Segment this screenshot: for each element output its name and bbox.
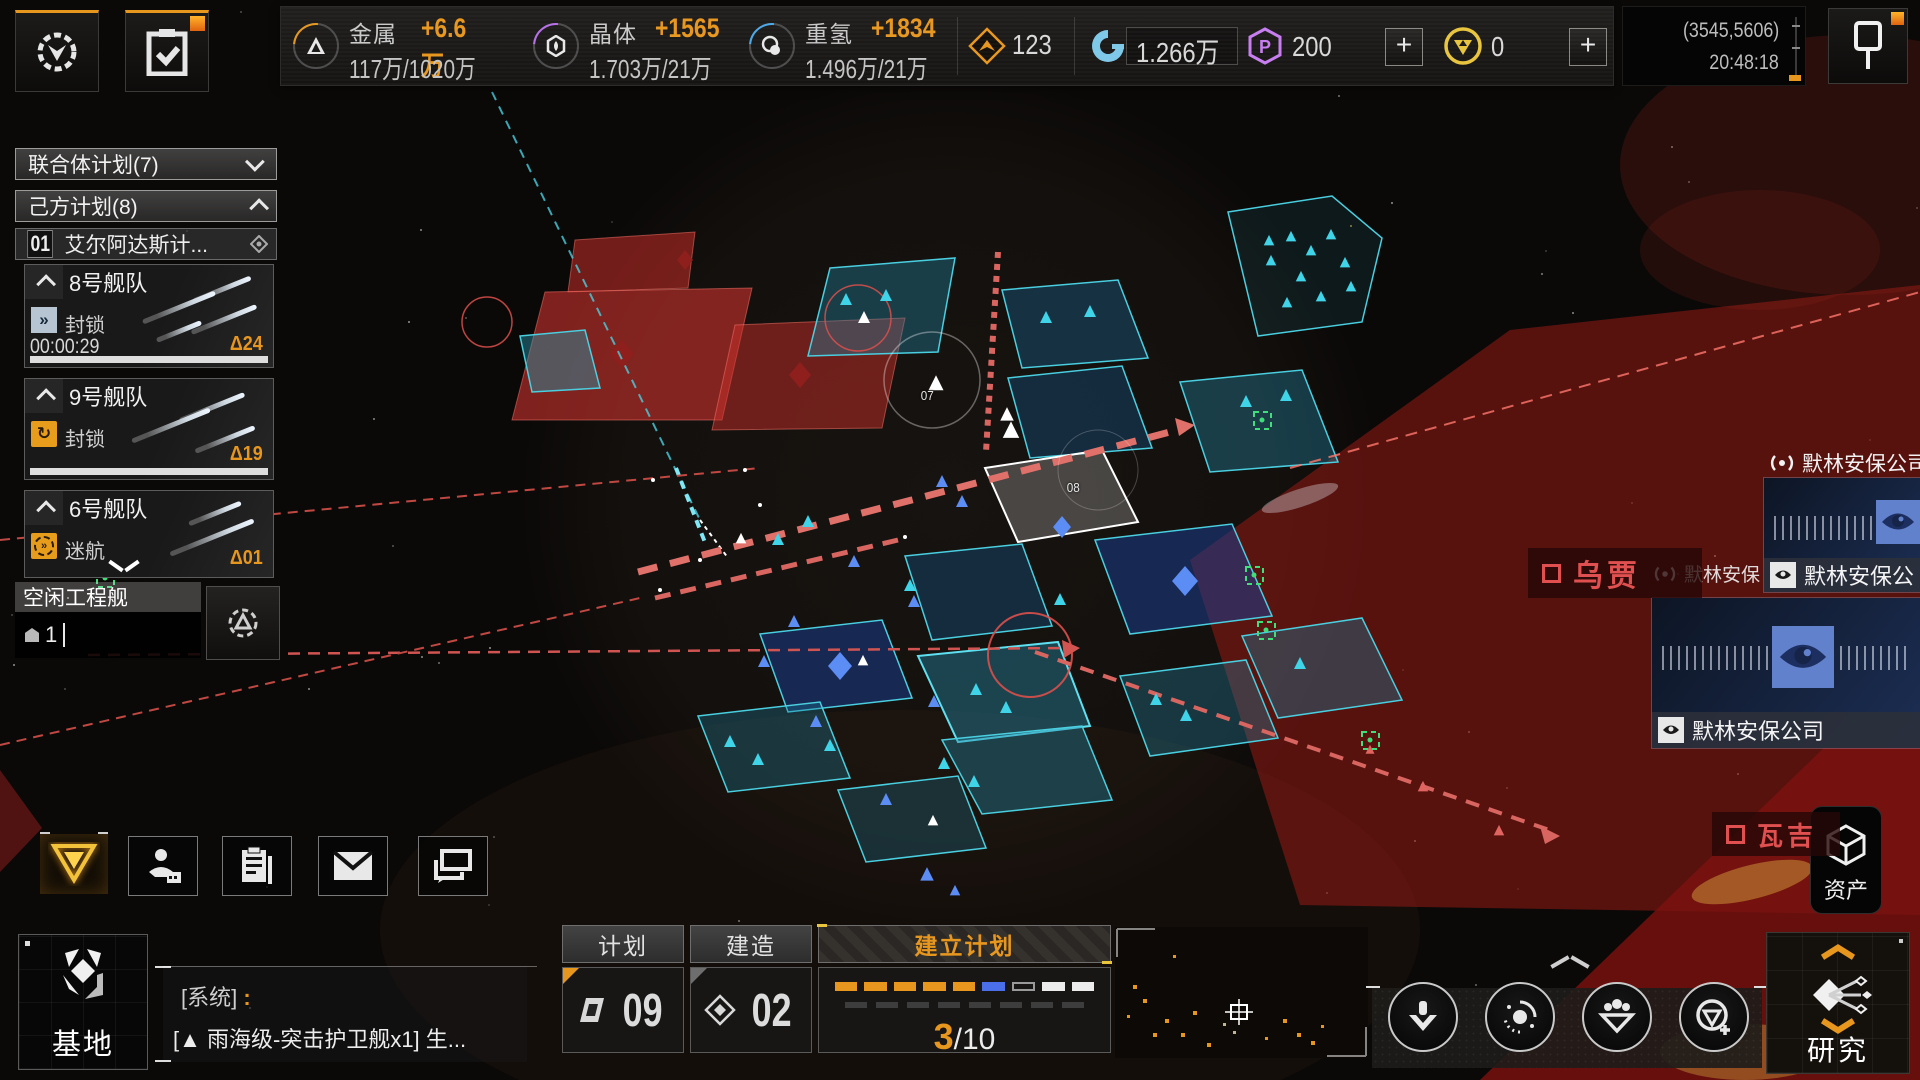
broadcast-icon — [1768, 451, 1796, 475]
plan-slot-empty — [1062, 1002, 1084, 1008]
proxima-coin-icon — [968, 27, 1006, 65]
plan-slot-empty — [907, 1002, 929, 1008]
enemy-label-wujia[interactable]: 乌贾 — [1528, 548, 1702, 598]
map-unit-tag: 08 — [1067, 480, 1080, 495]
base-button[interactable]: 基地 — [18, 934, 148, 1070]
plan-diamond-icon — [250, 235, 268, 253]
proxima-value: 123 — [1012, 29, 1052, 61]
game-screen: 07 08 金属 +6.6万 117万/1020万 — [0, 0, 1920, 1080]
build-count: 02 — [752, 983, 792, 1037]
buy-gold-plus-button[interactable]: + — [1569, 28, 1607, 66]
clipboard-check-icon — [145, 28, 189, 76]
tick — [1792, 47, 1800, 49]
establish-plan-cell[interactable]: 3/10 — [818, 967, 1111, 1053]
plan-slot-white — [1042, 982, 1064, 991]
plan-slot-orange — [864, 982, 886, 991]
gold-icon — [1443, 26, 1483, 66]
gear-emblem-icon — [32, 27, 82, 77]
plan-slot-white — [1072, 982, 1094, 991]
research-button[interactable]: 研究 — [1766, 932, 1910, 1074]
fleet-delta: Δ24 — [230, 333, 263, 356]
chat-button[interactable] — [418, 836, 488, 896]
eye-icon — [1772, 626, 1834, 688]
fleet-progress-bar — [30, 356, 268, 363]
own-plans-label: 己方计划(8) — [28, 191, 138, 221]
coordinates-clock: (3545,5606) 20:48:18 — [1622, 6, 1806, 86]
tactical-map[interactable]: 07 08 — [0, 0, 1920, 1080]
orange-tick — [1789, 75, 1801, 81]
cursor-caret — [63, 623, 65, 647]
fleet-status: 迷航 — [65, 535, 105, 564]
metal-amount: 117万/1020万 — [349, 49, 476, 86]
plan-slot-blue — [982, 982, 1004, 991]
fleet-status: 封锁 — [65, 423, 105, 452]
fleet-progress-bar — [30, 468, 268, 475]
fleet-name: 8号舰队 — [69, 266, 147, 298]
plan-slot-empty — [938, 1002, 960, 1008]
divider — [1074, 17, 1075, 75]
svg-text:P: P — [1259, 37, 1271, 57]
marker-flag-icon — [1853, 20, 1883, 72]
mail-icon — [332, 850, 374, 882]
deuterium-icon — [749, 23, 795, 69]
deuterium-label: 重氢 — [805, 15, 853, 49]
corner-dot — [25, 941, 30, 946]
plan-slots — [835, 982, 1094, 991]
deuterium-delta: +1834 — [871, 13, 935, 44]
buy-pass-plus-button[interactable]: + — [1385, 28, 1423, 66]
clipboard-doc-icon — [239, 846, 275, 886]
chevron-up-icon — [36, 388, 56, 408]
contacts-button[interactable] — [128, 836, 198, 896]
tab-plan[interactable]: 计划 — [562, 925, 684, 963]
plan-name: 艾尔阿达斯计... — [64, 229, 208, 259]
engineer-gear-icon — [222, 602, 264, 644]
dock-collapse-handle[interactable] — [1546, 952, 1594, 972]
base-diamond-icon — [45, 943, 121, 1015]
surveillance-1-caption: 默林安保公 — [1764, 558, 1920, 592]
minimap-canvas — [1115, 927, 1368, 1058]
commander-menu-button[interactable] — [15, 10, 99, 92]
engineer-ship-icon — [25, 628, 39, 642]
surveillance-panel-2[interactable]: 默林安保公司 — [1652, 598, 1920, 748]
map-canvas — [0, 0, 1920, 1080]
fleet-card-9[interactable]: 9号舰队 ↻ 封锁 Δ19 — [24, 378, 274, 480]
coordinates-value: (3545,5606) — [1683, 19, 1779, 43]
divider — [957, 17, 958, 75]
plan-slots-dim — [835, 1002, 1094, 1008]
resource-metal[interactable]: 金属 +6.6万 117万/1020万 — [293, 7, 493, 85]
gold-value: 0 — [1491, 31, 1504, 63]
plan-slot-empty — [845, 1002, 867, 1008]
metal-icon — [293, 23, 339, 69]
fleet-status: 封锁 — [65, 309, 105, 338]
fleet-name: 6号舰队 — [69, 492, 147, 524]
plan-slot-orange — [835, 982, 857, 991]
chat-bubbles-icon — [432, 848, 474, 884]
corner-dot — [1899, 939, 1903, 943]
tab-establish-plan-label: 建立计划 — [915, 927, 1015, 961]
fleet-list-expand-handle[interactable] — [104, 564, 144, 582]
system-chat-box[interactable]: [系统] : [▲ 雨海级-突击护卫舰x1] 生... — [163, 966, 527, 1062]
divider — [163, 966, 537, 967]
pass-point-icon: P — [1246, 27, 1284, 65]
tick — [1792, 25, 1800, 27]
people-funnel-icon — [1598, 999, 1636, 1035]
union-value: 1.266万 — [1136, 31, 1219, 71]
idle-engineer-count: 1 — [45, 622, 57, 648]
watcher-mini-icon — [1658, 717, 1684, 743]
enemy-name: 瓦吉 — [1757, 816, 1817, 853]
plan-count-cell[interactable]: 09 — [562, 967, 684, 1053]
plan-count: 09 — [623, 983, 663, 1037]
chevron-up-icon — [249, 198, 269, 218]
reports-button[interactable] — [222, 836, 292, 896]
system-message: [▲ 雨海级-突击护卫舰x1] 生... — [173, 1022, 466, 1054]
pass-value: 200 — [1292, 31, 1332, 63]
clock-value: 20:48:18 — [1710, 51, 1779, 75]
marker-badge — [1891, 12, 1904, 25]
tasks-button[interactable] — [125, 10, 209, 92]
recruit-button[interactable] — [1679, 982, 1749, 1052]
surveillance-panel-1[interactable]: 默林安保公 — [1764, 478, 1920, 592]
ship-sprite — [191, 304, 258, 335]
plan-slot-empty — [1031, 1002, 1053, 1008]
person-supply-icon — [143, 846, 183, 886]
union-plans-header[interactable]: 联合体计划(7) — [15, 148, 277, 180]
fleet-card-6[interactable]: 6号舰队 » 迷航 Δ01 — [24, 490, 274, 578]
members-button[interactable] — [1582, 982, 1652, 1052]
idle-engineer-slot[interactable]: 1 — [15, 612, 201, 658]
eye-icon — [1876, 500, 1920, 544]
deuterium-amount: 1.496万/21万 — [805, 49, 928, 86]
assets-label: 资产 — [1811, 873, 1881, 905]
watcher-mini-icon — [1770, 562, 1796, 588]
galaxy-view-button[interactable] — [1485, 982, 1555, 1052]
build-tabs-panel: 计划 建造 建立计划 09 02 — [560, 925, 1113, 1053]
warp-icon: » — [31, 533, 57, 559]
mail-button[interactable] — [318, 836, 388, 896]
collapse-chevron[interactable] — [25, 265, 63, 299]
audio-waveform — [1774, 516, 1874, 540]
active-plan-item[interactable]: 01 艾尔阿达斯计... — [15, 228, 277, 260]
fleet-card-8[interactable]: 8号舰队 » 封锁 00:00:29 Δ24 — [24, 264, 274, 368]
plan-slot-empty — [876, 1002, 898, 1008]
resource-deuterium[interactable]: 重氢 +1834 1.496万/21万 — [749, 7, 939, 85]
metal-label: 金属 — [349, 15, 397, 49]
map-unit-tag: 07 — [921, 388, 934, 403]
research-label: 研究 — [1767, 1029, 1909, 1069]
collapse-chevron[interactable] — [25, 379, 63, 413]
plan-index: 01 — [27, 230, 53, 258]
plan-slot-empty — [1000, 1002, 1022, 1008]
download-arrow-icon — [1406, 999, 1440, 1035]
system-prefix: [系统] : — [181, 980, 251, 1012]
currency-proxima[interactable]: 123 — [968, 7, 1068, 85]
resource-crystal[interactable]: 晶体 +1565 1.703万/21万 — [533, 7, 723, 85]
minimap[interactable] — [1115, 927, 1368, 1058]
diamond-build-icon — [704, 994, 736, 1026]
tab-build[interactable]: 建造 — [690, 925, 812, 963]
faction-button[interactable] — [40, 834, 108, 894]
crystal-icon — [533, 23, 579, 69]
union-coin-icon — [1088, 26, 1128, 66]
engage-icon: ↻ — [31, 421, 57, 447]
chevron-up-icon — [36, 274, 56, 294]
logo-plus-icon — [1694, 997, 1734, 1037]
faction-triangle-icon — [48, 842, 100, 886]
position-marker-button[interactable] — [1828, 8, 1908, 84]
build-count-cell[interactable]: 02 — [690, 967, 812, 1053]
union-plans-label: 联合体计划(7) — [28, 149, 159, 179]
crystal-delta: +1565 — [655, 13, 719, 44]
plan-slot-orange — [894, 982, 916, 991]
crystal-amount: 1.703万/21万 — [589, 49, 712, 86]
fleet-name: 9号舰队 — [69, 380, 147, 412]
base-label: 基地 — [19, 1021, 147, 1063]
deploy-button[interactable] — [1388, 982, 1458, 1052]
hollow-square-icon — [1726, 825, 1745, 844]
plan-slot-gray — [1012, 982, 1035, 991]
plan-slot-orange — [953, 982, 975, 991]
fast-forward-icon: » — [31, 307, 57, 333]
tab-plan-label: 计划 — [598, 927, 648, 961]
chevron-down-icon — [245, 152, 265, 172]
enemy-name: 乌贾 — [1573, 551, 1641, 595]
audio-waveform — [1840, 646, 1910, 670]
surveillance-top-label: 默林安保公司发 — [1768, 448, 1920, 478]
plan-progress: 3/10 — [819, 1016, 1110, 1058]
chevron-up-icon — [36, 500, 56, 520]
engineer-manage-button[interactable] — [206, 586, 280, 660]
hollow-square-icon — [1542, 564, 1561, 583]
own-plans-header[interactable]: 己方计划(8) — [15, 190, 277, 222]
spiral-galaxy-icon — [1501, 998, 1539, 1036]
tab-establish-plan[interactable]: 建立计划 — [818, 925, 1111, 963]
currency-pass[interactable]: P 200 — [1246, 7, 1396, 85]
bottom-right-dock — [1372, 988, 1762, 1068]
fleet-delta: Δ01 — [230, 547, 263, 570]
crystal-label: 晶体 — [589, 15, 637, 49]
chevron-up-icon — [1821, 945, 1855, 961]
hexagon-plan-icon — [577, 995, 607, 1025]
idle-engineer-label: 空闲工程舰 — [15, 582, 201, 612]
research-circuit-icon — [1795, 969, 1881, 1021]
surveillance-2-caption: 默林安保公司 — [1652, 712, 1920, 748]
fleet-delta: Δ19 — [230, 443, 263, 466]
enemy-label-waji[interactable]: 瓦吉 — [1712, 812, 1840, 856]
tab-build-label: 建造 — [726, 927, 776, 961]
tasks-notification-badge — [190, 16, 205, 31]
system-colon: : — [237, 985, 250, 1010]
collapse-chevron[interactable] — [25, 491, 63, 525]
plan-slot-empty — [969, 1002, 991, 1008]
audio-waveform — [1662, 646, 1772, 670]
plan-slot-orange — [923, 982, 945, 991]
top-resource-bar: 金属 +6.6万 117万/1020万 晶体 +1565 1.703万/21万 … — [280, 6, 1614, 86]
